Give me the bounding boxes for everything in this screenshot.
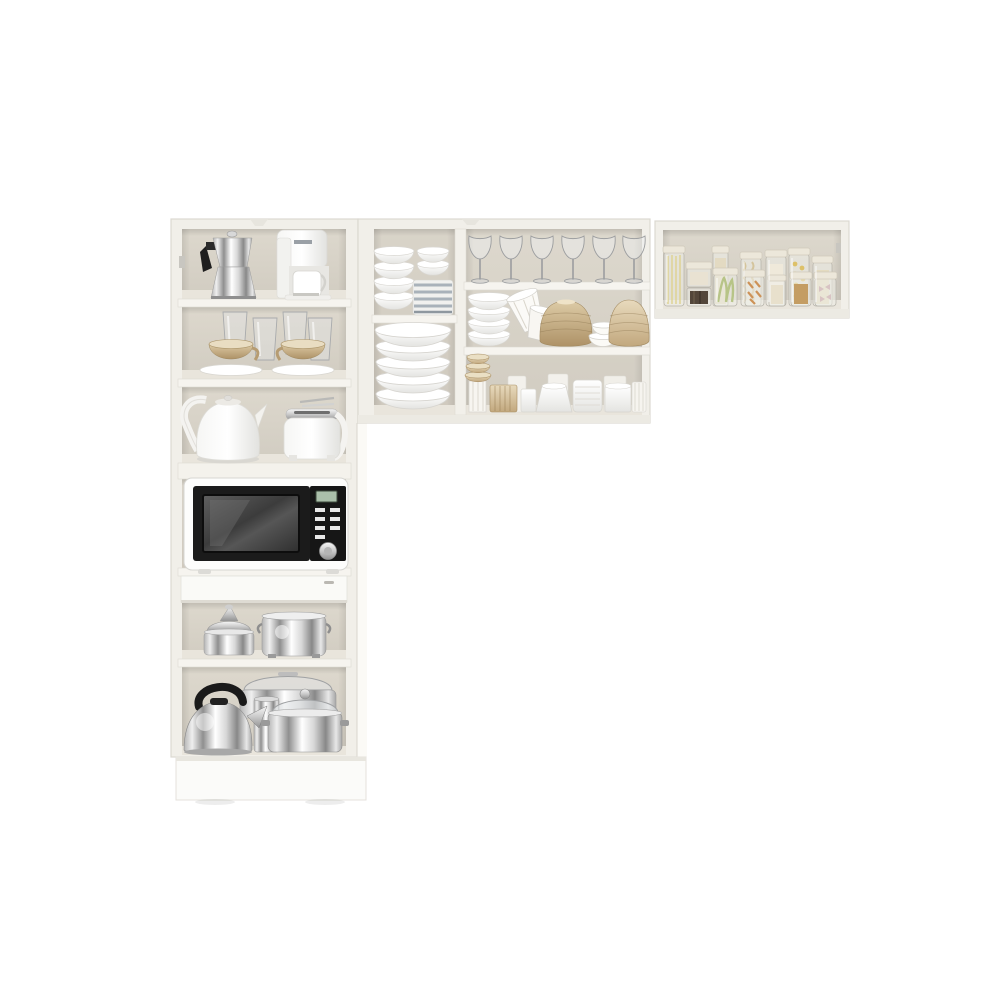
bowl-stack-large: Stack of five large white bowls [375,323,451,410]
jar-farfalle [814,272,837,306]
jar-dark-grains: Dark grains [687,288,711,306]
hinge [836,243,841,253]
jar-small-white: Yellow macaroni [768,275,786,306]
middle-cabinet-bottom-face [358,415,650,423]
stock-pot: Large stainless stock pot with side hand… [258,612,330,658]
middle-upper-cabinet: Wide double upper wall cabinet with dish… [358,219,650,423]
jar-lentils: Pale shell pasta [790,272,812,306]
drawer-front: White drawer front [181,576,347,603]
hinge [179,256,185,268]
product-photo: Tall white pantry cabinet with open shel… [0,0,1000,1000]
jar-penne: Orange penne [744,270,765,306]
middle-right-shelf-1 [464,282,650,290]
middle-right-shelf-2 [464,347,650,355]
microwave: White microwave oven with black door, di… [184,478,348,574]
right-cabinet-bottom-face [655,309,849,318]
mini-bowl-stack: Two small white bowls [417,247,449,275]
jar-white-pasta: Small white pasta [686,262,712,287]
coffee-maker: White drip coffee maker with carafe [277,230,331,300]
cup-row: Assorted white and tan cups and tumblers [490,374,646,412]
middle-left-shelf [372,315,457,323]
kitchen-cabinet-scene: Tall white pantry cabinet with open shel… [0,0,1000,1000]
bowl-stack-small: Stack of four white bowls [374,247,414,310]
tall-cabinet: Tall white pantry cabinet with open shel… [171,219,367,805]
tall-cabinet-side-panel [357,423,367,757]
right-upper-cabinet: Single wide upper wall cabinet with glas… [655,221,849,318]
base-plinth: White plinth base [176,757,366,805]
ribbed-bowl-stack: Stack of four ribbed white bowls [468,293,510,347]
striped-plate-stack: Stack of blue-gray striped plates [413,280,453,315]
